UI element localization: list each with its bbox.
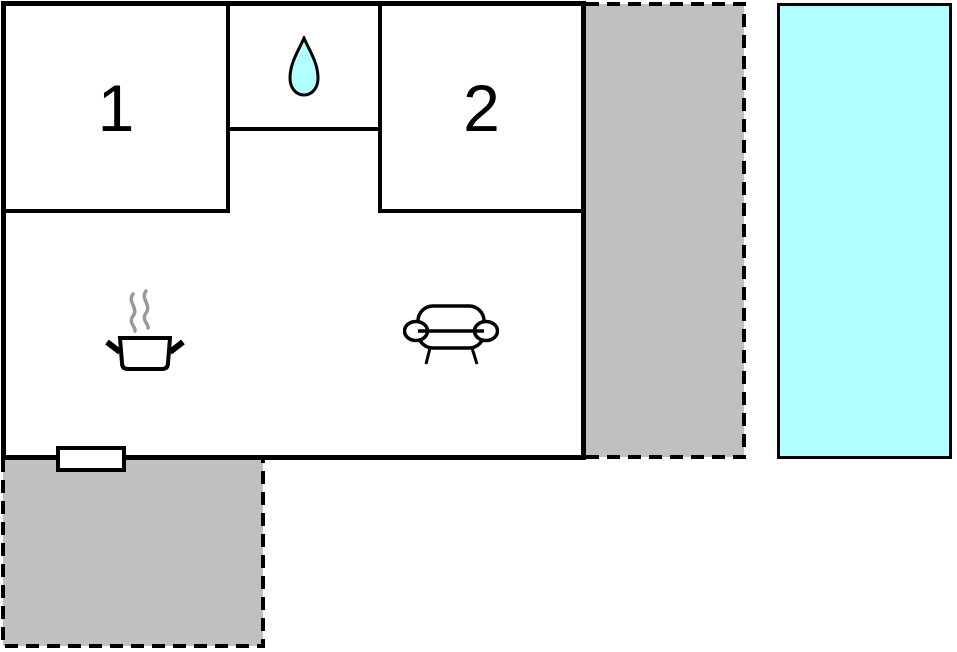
- pot-body: [120, 338, 170, 369]
- room-2: 2: [382, 6, 581, 209]
- terrace-bottom: [0, 458, 268, 652]
- room-1: 1: [6, 6, 226, 209]
- cooking-pot-icon: [103, 289, 185, 373]
- room-2-label: 2: [463, 75, 500, 141]
- water-drop-icon: [287, 36, 321, 98]
- steam-line-right: [144, 291, 148, 328]
- sofa-icon: [403, 304, 499, 366]
- wall-room2-bottom: [378, 209, 581, 213]
- sofa-legs: [426, 348, 477, 364]
- terrace-right-outline: [586, 4, 744, 457]
- floor-plan: 1 2: [0, 0, 957, 652]
- bathroom: [230, 6, 378, 127]
- wall-bathroom-bottom: [226, 127, 382, 131]
- terrace-right: [584, 0, 748, 462]
- room-1-label: 1: [98, 75, 135, 141]
- terrace-bottom-outline: [3, 459, 263, 646]
- door: [56, 446, 126, 472]
- wall-room1-bottom: [6, 209, 230, 213]
- steam-line-left: [131, 294, 135, 331]
- pool: [777, 3, 952, 459]
